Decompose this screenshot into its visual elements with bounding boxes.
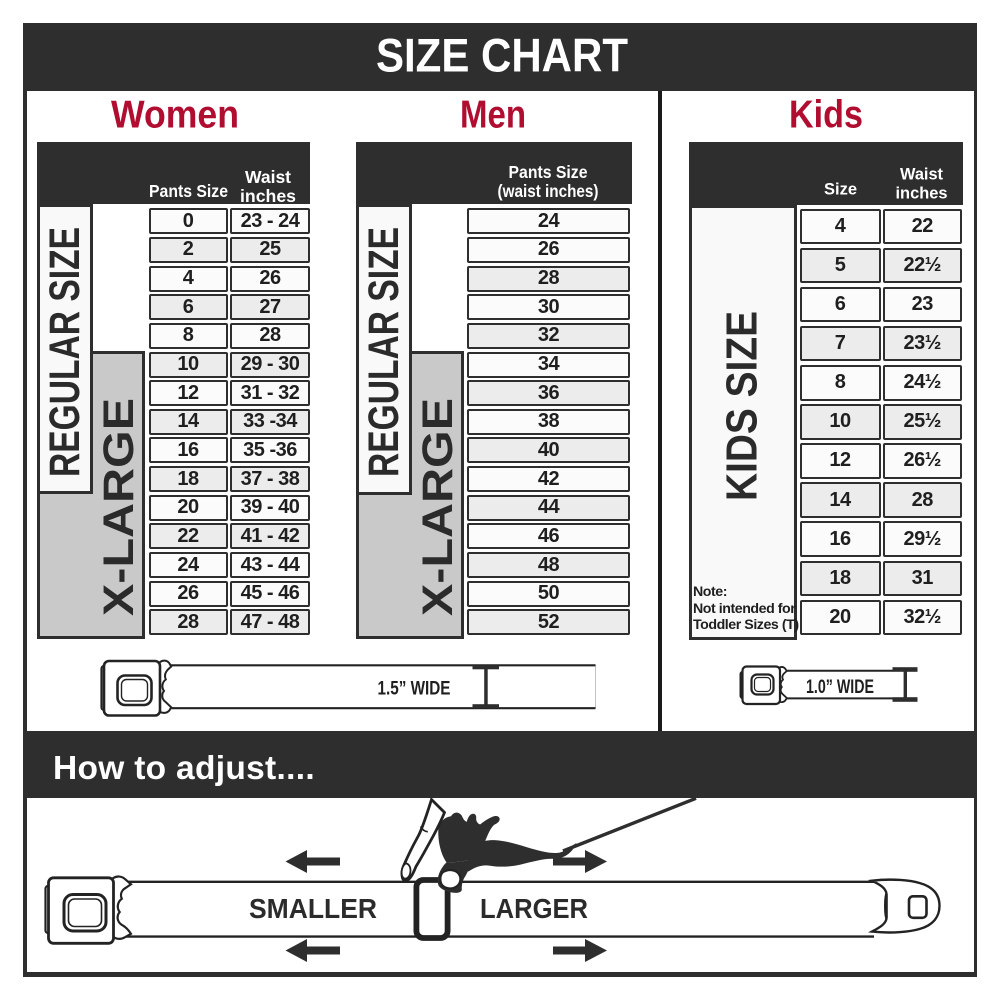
svg-text:Pants Size: Pants Size [509,162,588,182]
svg-text:(waist inches): (waist inches) [498,181,599,201]
svg-text:REGULAR SIZE: REGULAR SIZE [360,227,408,477]
svg-text:X-LARGE: X-LARGE [95,398,143,616]
svg-text:REGULAR SIZE: REGULAR SIZE [41,227,89,477]
svg-text:Women: Women [111,94,239,136]
svg-text:Size: Size [824,180,857,199]
svg-text:Men: Men [460,94,526,136]
svg-text:1.0” WIDE: 1.0” WIDE [806,677,874,698]
svg-text:1.5” WIDE: 1.5” WIDE [378,679,451,700]
svg-text:inches: inches [896,185,948,203]
svg-text:Pants Size: Pants Size [149,181,228,201]
svg-text:LARGER: LARGER [480,893,588,924]
svg-text:Waist: Waist [245,167,291,187]
svg-text:SMALLER: SMALLER [249,893,377,924]
svg-text:KIDS SIZE: KIDS SIZE [718,311,767,501]
svg-text:SIZE CHART: SIZE CHART [376,30,628,83]
svg-text:X-LARGE: X-LARGE [414,398,462,616]
svg-text:inches: inches [240,186,296,204]
svg-text:Kids: Kids [789,94,863,136]
svg-text:Waist: Waist [900,166,943,184]
